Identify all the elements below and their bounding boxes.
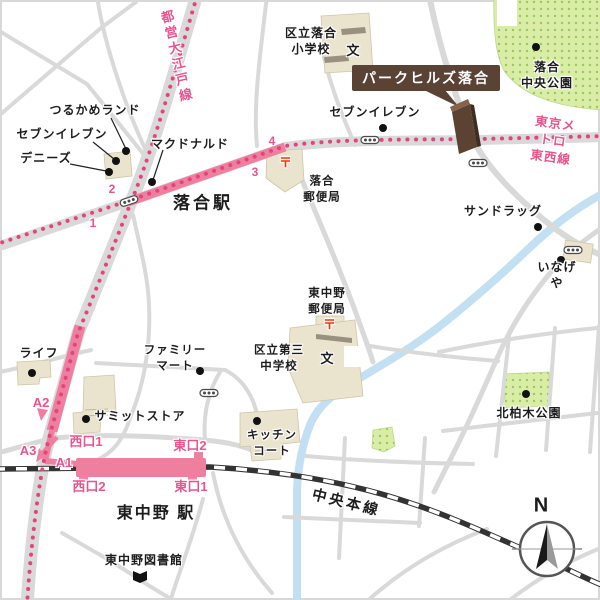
small-park-area	[372, 427, 395, 452]
dennys-dot	[105, 168, 113, 176]
kitakashiwagi-park-area	[504, 372, 550, 408]
summit-building	[73, 375, 116, 434]
a2-exit-arrow	[37, 408, 48, 421]
sundrug-dot	[534, 223, 542, 231]
tsurukame-dot	[122, 147, 130, 155]
life-dot	[28, 369, 36, 377]
map-graphics	[0, 0, 600, 600]
park-notch	[497, 0, 517, 26]
seven-eleven-west-dot	[112, 157, 120, 165]
area-map: 都営大江戸線 つるかめランド セブンイレブン デニーズ マクドナルド 区立落合 …	[0, 0, 600, 600]
inageya-dot	[557, 256, 565, 264]
higashinakano-platform	[76, 452, 206, 482]
seven-eleven-center-dot	[379, 124, 387, 132]
kitchen-court-building	[240, 409, 300, 461]
oedo-road	[27, 0, 197, 600]
elementary-school-building	[321, 13, 373, 73]
mcdonalds-dot	[148, 178, 156, 186]
property-name-label: パークヒルズ落合	[352, 65, 500, 91]
compass	[512, 522, 582, 576]
familymart-dot	[196, 367, 204, 375]
central-park-dot	[532, 43, 540, 51]
summit-dot	[82, 415, 90, 423]
kitakashiwagi-dot	[522, 390, 530, 398]
kitchen-court-dot	[253, 417, 261, 425]
